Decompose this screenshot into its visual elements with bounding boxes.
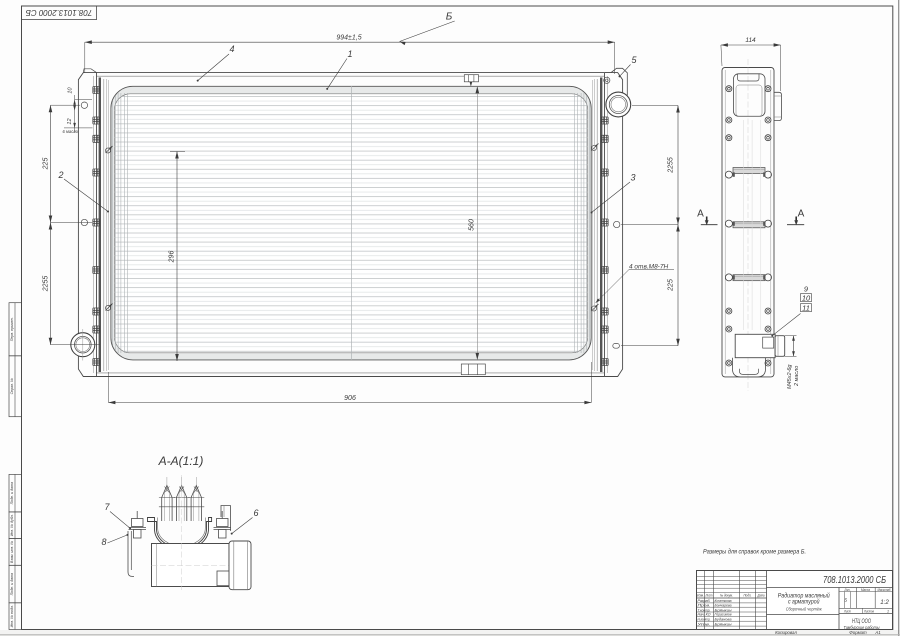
svg-text:2255: 2255 [668, 157, 675, 174]
svg-text:Подп. и дата: Подп. и дата [10, 573, 14, 596]
svg-text:А-А(1:1): А-А(1:1) [158, 454, 204, 468]
svg-text:Лист: Лист [843, 609, 851, 613]
svg-text:Разраб.: Разраб. [698, 599, 711, 603]
svg-text:Бончарева: Бончарева [715, 604, 732, 608]
svg-text:Сборочный чертёж: Сборочный чертёж [786, 605, 823, 612]
svg-text:708.1013.2000 СБ: 708.1013.2000 СБ [26, 8, 93, 17]
svg-text:10: 10 [802, 293, 811, 302]
svg-text:994±1,5: 994±1,5 [336, 35, 361, 42]
svg-text:Справ. №: Справ. № [10, 378, 14, 394]
svg-text:11: 11 [802, 304, 810, 313]
svg-text:6: 6 [253, 508, 258, 518]
svg-text:4: 4 [229, 44, 234, 54]
svg-text:1: 1 [347, 49, 352, 59]
svg-text:Нач. КО: Нач. КО [698, 613, 711, 617]
svg-text:6 масло: 6 масло [63, 129, 79, 134]
svg-text:Изм.: Изм. [697, 594, 704, 598]
svg-text:Формат: Формат [849, 630, 867, 635]
svg-text:Утв.: Утв. [698, 622, 711, 626]
svg-text:Пров.: Пров. [698, 604, 711, 608]
svg-text:12: 12 [67, 118, 73, 124]
svg-text:Б: Б [446, 12, 453, 23]
svg-text:Подп.: Подп. [744, 594, 752, 598]
svg-text:Дата: Дата [757, 594, 765, 598]
svg-text:708.1013.2000 СБ: 708.1013.2000 СБ [823, 575, 886, 586]
svg-text:225: 225 [668, 279, 675, 292]
svg-text:Н.контр.: Н.контр. [698, 618, 711, 622]
svg-text:2 масло: 2 масло [794, 366, 800, 387]
svg-text:Брянкин: Брянкин [715, 622, 732, 626]
svg-text:2: 2 [57, 170, 63, 180]
svg-text:3: 3 [630, 173, 635, 183]
svg-text:Инв. № дубл.: Инв. № дубл. [10, 514, 14, 536]
svg-text:296: 296 [169, 251, 176, 264]
svg-text:Буданова: Буданова [715, 618, 732, 622]
svg-text:Масштаб: Масштаб [878, 588, 891, 592]
svg-text:Копировал: Копировал [775, 630, 797, 635]
svg-text:с арматурой: с арматурой [788, 597, 820, 605]
svg-text:1: 1 [887, 609, 889, 613]
svg-text:Брянкин: Брянкин [715, 608, 732, 612]
svg-text:Б: Б [844, 598, 847, 603]
svg-text:2255: 2255 [43, 276, 50, 293]
svg-text:Размеры для справок кроме разм: Размеры для справок кроме размера Б. [703, 548, 806, 556]
svg-text:906: 906 [344, 395, 356, 402]
svg-text:Инв. № подл.: Инв. № подл. [10, 605, 14, 627]
svg-text:Масса: Масса [861, 588, 870, 592]
svg-text:Перв. примен.: Перв. примен. [10, 317, 14, 341]
svg-text:Подп. и дата: Подп. и дата [10, 482, 14, 505]
svg-text:114: 114 [745, 37, 756, 44]
svg-text:А: А [697, 209, 704, 220]
svg-text:М45х2-6g: М45х2-6g [787, 364, 793, 389]
svg-text:10: 10 [68, 87, 74, 94]
svg-text:560: 560 [469, 219, 476, 231]
svg-text:Лит.: Лит. [844, 588, 851, 592]
svg-text:А1: А1 [874, 630, 881, 635]
svg-text:1:2: 1:2 [880, 599, 889, 606]
svg-text:Взам. инв. №: Взам. инв. № [10, 541, 14, 563]
svg-text:8: 8 [101, 537, 106, 547]
svg-text:Листов: Листов [863, 609, 874, 613]
svg-text:Кочеткова: Кочеткова [715, 599, 732, 603]
svg-text:№ докум.: № докум. [720, 594, 733, 598]
svg-text:Герасимов: Герасимов [715, 613, 732, 617]
svg-text:225: 225 [43, 158, 50, 171]
svg-text:Лист: Лист [705, 594, 713, 598]
svg-text:Т.контр.: Т.контр. [698, 608, 711, 612]
svg-text:А: А [798, 209, 805, 220]
